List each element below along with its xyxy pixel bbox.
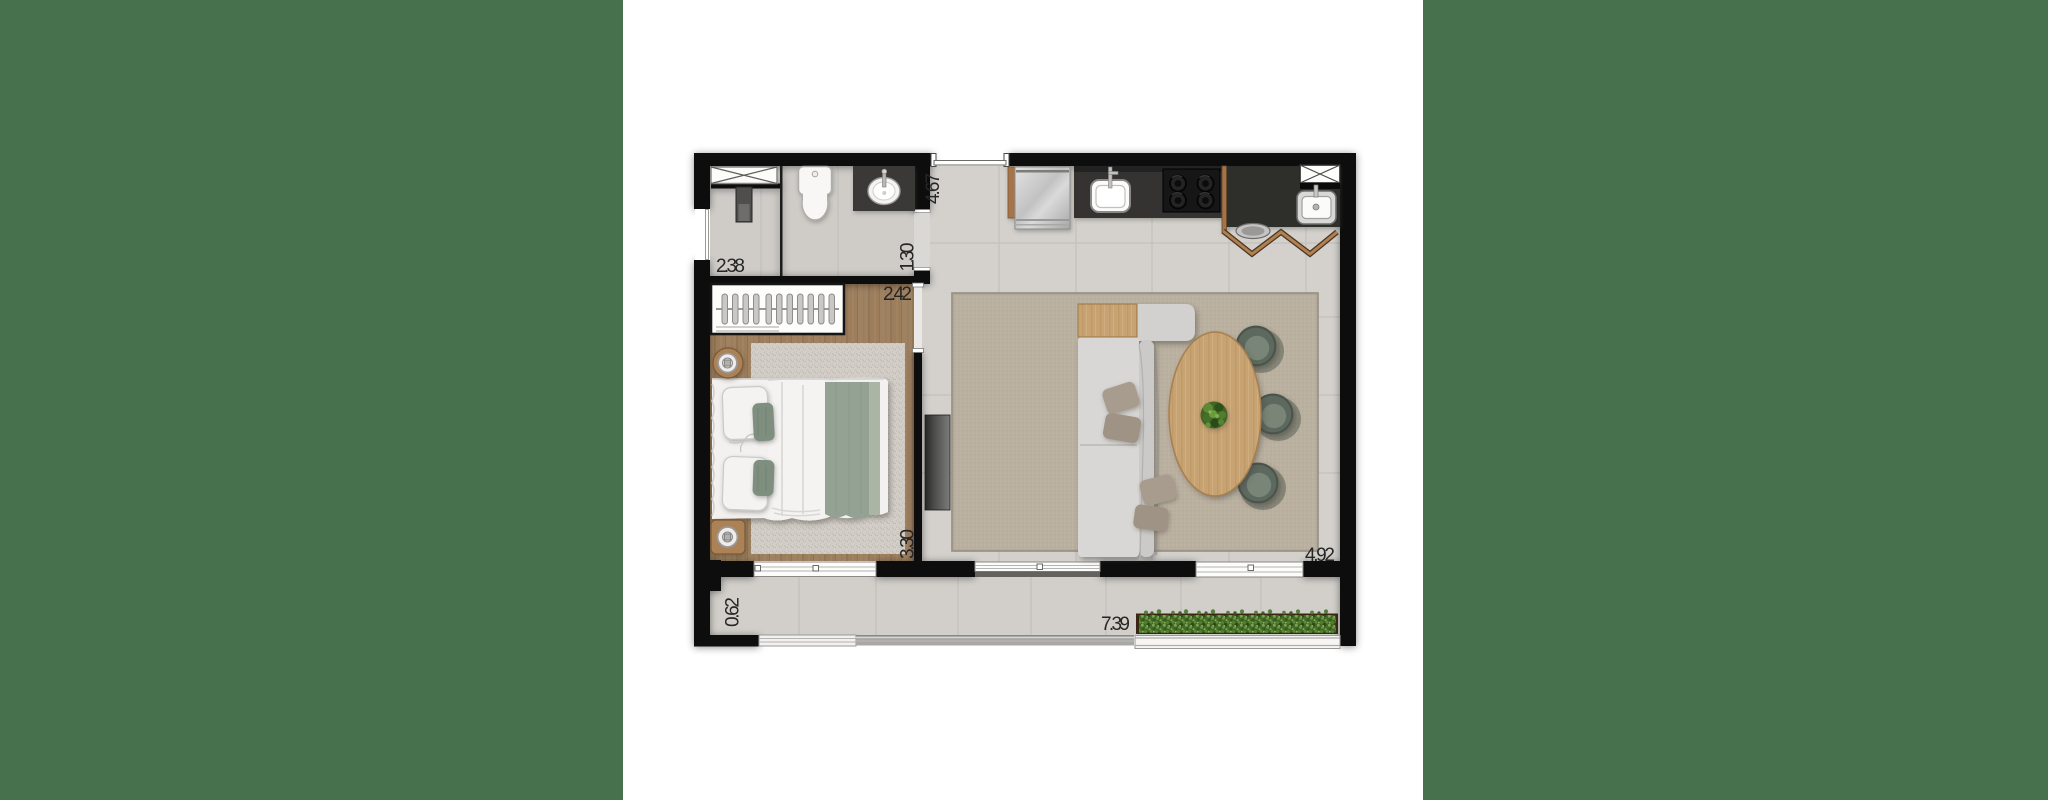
- svg-text:4.92: 4.92: [1305, 545, 1335, 566]
- svg-text:7.39: 7.39: [1101, 614, 1130, 635]
- svg-text:2.42: 2.42: [883, 284, 912, 305]
- svg-text:0.62: 0.62: [723, 597, 744, 627]
- svg-text:3.30: 3.30: [898, 529, 919, 559]
- svg-text:1.30: 1.30: [898, 243, 919, 272]
- svg-text:2.38: 2.38: [716, 256, 745, 277]
- svg-text:4.67: 4.67: [923, 173, 944, 204]
